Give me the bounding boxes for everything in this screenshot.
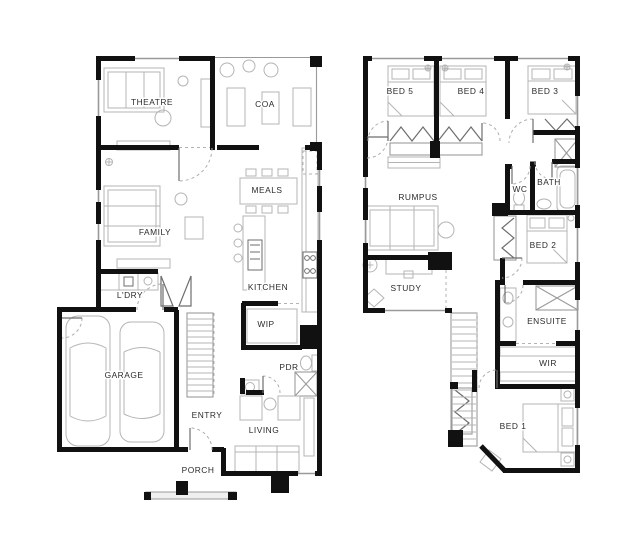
wall-block bbox=[428, 252, 452, 270]
sofa-icon bbox=[366, 157, 454, 250]
bed-icon bbox=[527, 215, 574, 263]
wall-post bbox=[310, 56, 322, 67]
room-label-bed1: BED 1 bbox=[500, 421, 527, 431]
room-label-bed5: BED 5 bbox=[387, 86, 414, 96]
porch-post bbox=[228, 492, 237, 500]
room-label-pdr: PDR bbox=[279, 362, 298, 372]
room-label-living: LIVING bbox=[249, 425, 279, 435]
ground-floor-plan: THEATRE COA MEALS FAMILY KITCHEN L'DRY W… bbox=[57, 56, 322, 500]
wall-block bbox=[271, 471, 289, 493]
floorplan-page: THEATRE COA MEALS FAMILY KITCHEN L'DRY W… bbox=[0, 0, 639, 551]
toilet-icon bbox=[301, 355, 319, 371]
ceiling-fan-icon bbox=[106, 159, 113, 166]
wall-post bbox=[310, 142, 322, 151]
ceiling-fan-icon bbox=[425, 64, 570, 71]
kitchen-island-icon bbox=[234, 216, 265, 290]
stairs-icon bbox=[187, 313, 213, 397]
room-label-theatre: THEATRE bbox=[131, 97, 173, 107]
first-floor-plan: BED 5 BED 4 BED 3 RUMPUS WC BATH BED 2 S… bbox=[363, 56, 580, 473]
porch-step-icon bbox=[146, 492, 236, 499]
desk-icon bbox=[363, 256, 432, 307]
room-label-bed3: BED 3 bbox=[532, 86, 559, 96]
door-leaf bbox=[62, 148, 263, 450]
wall-block bbox=[430, 141, 440, 158]
room-label-bed4: BED 4 bbox=[458, 86, 485, 96]
car-icon bbox=[120, 322, 164, 442]
wardrobe-icon bbox=[390, 119, 578, 155]
room-label-kitchen: KITCHEN bbox=[248, 282, 288, 292]
room-label-rumpus: RUMPUS bbox=[398, 192, 437, 202]
wall-block bbox=[448, 430, 463, 447]
room-label-porch: PORCH bbox=[182, 465, 215, 475]
toilet-icon bbox=[514, 191, 525, 212]
room-label-wir: WIR bbox=[539, 358, 557, 368]
floorplan-drawing: THEATRE COA MEALS FAMILY KITCHEN L'DRY W… bbox=[0, 0, 639, 551]
room-label-ensuite: ENSUITE bbox=[527, 316, 567, 326]
wall-block bbox=[492, 203, 508, 216]
porch-post bbox=[176, 481, 188, 495]
wardrobe-icon bbox=[494, 216, 516, 260]
sofa-icon bbox=[235, 446, 299, 472]
porch-post bbox=[144, 492, 151, 500]
room-label-meals: MEALS bbox=[252, 185, 283, 195]
room-label-wc: WC bbox=[513, 184, 528, 194]
outdoor-setting-icon bbox=[220, 60, 311, 126]
shower-icon bbox=[295, 372, 317, 396]
room-label-garage: GARAGE bbox=[105, 370, 144, 380]
room-label-bath: BATH bbox=[537, 177, 561, 187]
room-label-ldry: L'DRY bbox=[117, 290, 143, 300]
double-door-icon bbox=[161, 276, 191, 306]
room-label-family: FAMILY bbox=[139, 227, 171, 237]
room-label-wip: WIP bbox=[257, 319, 274, 329]
bathtub-icon bbox=[537, 166, 578, 212]
room-label-coa: COA bbox=[255, 99, 275, 109]
room-label-bed2: BED 2 bbox=[530, 240, 557, 250]
wall-block bbox=[450, 382, 458, 389]
kitchen-bench-icon bbox=[302, 148, 318, 312]
room-label-entry: ENTRY bbox=[192, 410, 223, 420]
vanity-icon bbox=[500, 288, 516, 342]
wall-block bbox=[300, 325, 322, 349]
room-label-study: STUDY bbox=[391, 283, 422, 293]
shower-icon bbox=[536, 286, 578, 310]
